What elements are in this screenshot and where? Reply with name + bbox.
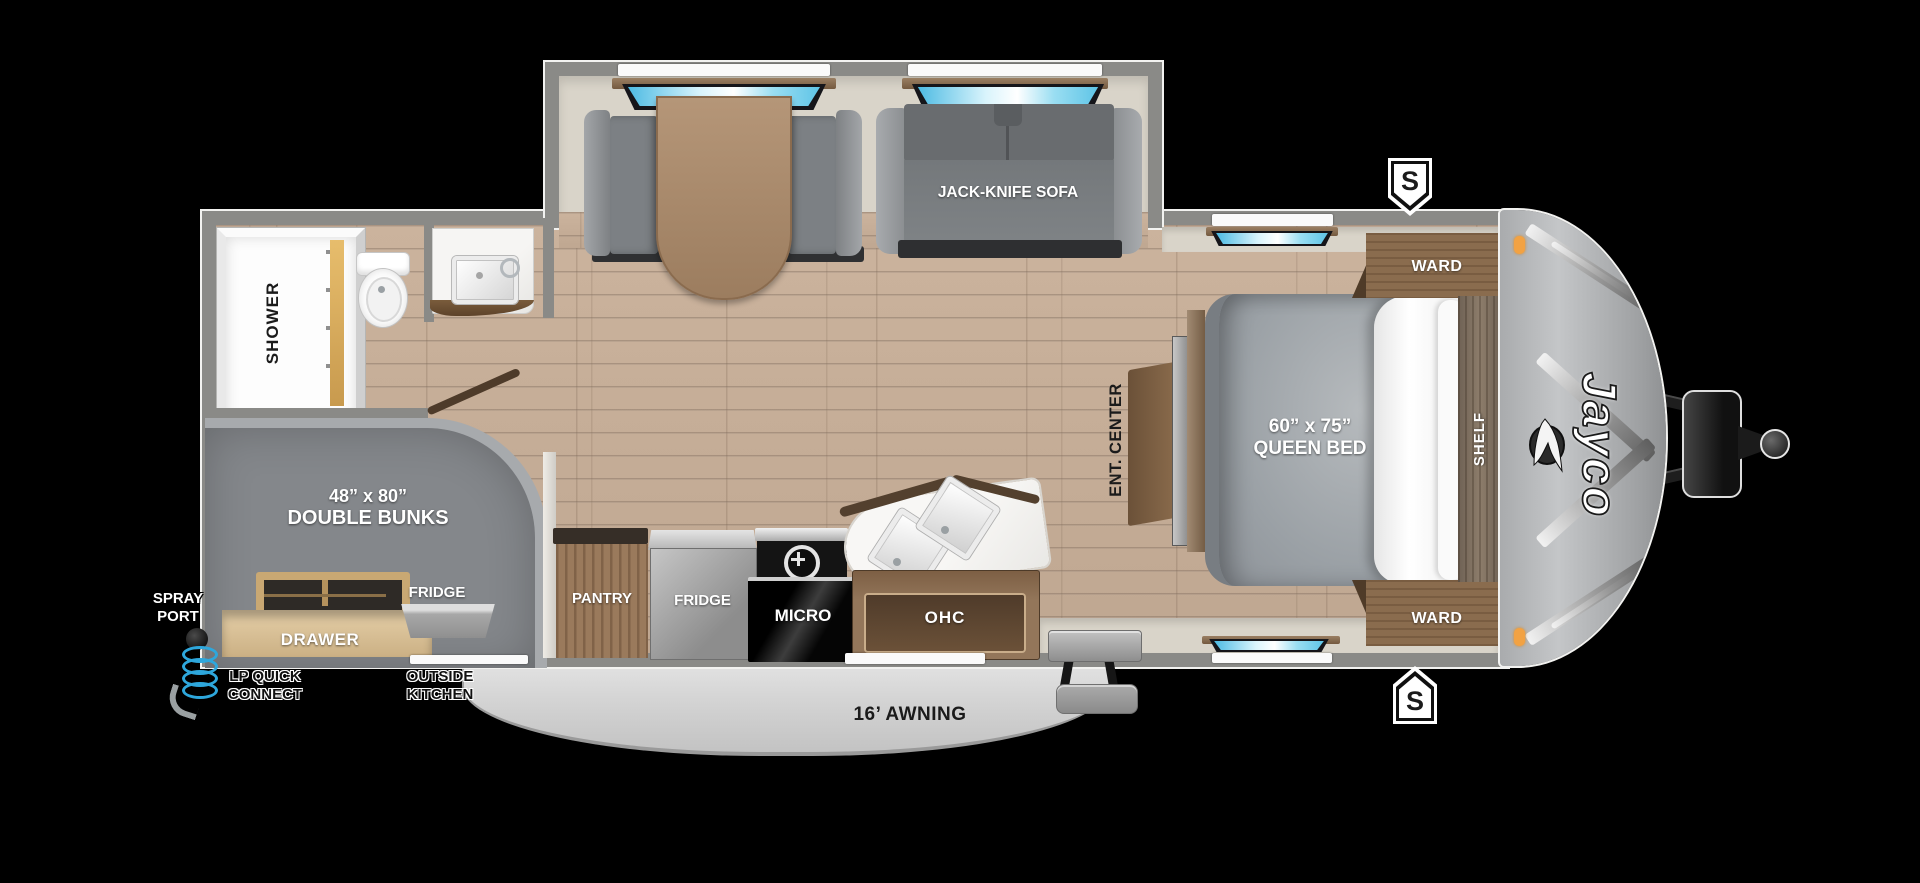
bunk-opening-shelf-line bbox=[264, 594, 386, 597]
bunks-label: 48” x 80” DOUBLE BUNKS bbox=[268, 486, 468, 531]
shower-door-hinge-dots bbox=[326, 250, 330, 400]
bathroom-right-wall bbox=[543, 218, 554, 318]
spray-port-line2: PORT bbox=[136, 608, 220, 626]
bedroom-top-window-glass bbox=[1215, 233, 1329, 244]
marker-light-top bbox=[1514, 236, 1525, 254]
dinette-bench-left-cushion bbox=[610, 116, 658, 254]
fridge-top-vent bbox=[648, 530, 757, 550]
ward-bottom-label: WARD bbox=[1392, 610, 1482, 629]
queen-bed-label: 60” x 75” QUEEN BED bbox=[1230, 416, 1390, 461]
outside-kitchen-label: OUTSIDE KITCHEN bbox=[378, 668, 502, 704]
hitch-ball-coupler bbox=[1760, 429, 1790, 459]
toilet-seat bbox=[366, 277, 402, 322]
sofa-back-notch bbox=[994, 104, 1022, 126]
entry-step-upper bbox=[1048, 630, 1142, 662]
marker-light-bottom bbox=[1514, 628, 1525, 646]
slide-window-right-exterior-bar bbox=[908, 64, 1102, 76]
dinette-bench-left-back bbox=[584, 110, 610, 256]
slide-window-left-exterior-bar bbox=[618, 64, 830, 76]
rv-floorplan: 16’ AWNING JACK-KNIFE SOFA SHOWER bbox=[0, 0, 1920, 883]
bedroom-bottom-window-glass bbox=[1213, 641, 1325, 650]
sofa-label: JACK-KNIFE SOFA bbox=[908, 184, 1108, 202]
lp-quick-connect-label: LP QUICK CONNECT bbox=[203, 668, 327, 704]
shelf-label: SHELF bbox=[1471, 369, 1489, 509]
bunks-size-label: 48” x 80” bbox=[268, 486, 468, 507]
burner-cross-v bbox=[797, 552, 800, 566]
drawer-label: DRAWER bbox=[240, 630, 400, 650]
kitchen-sink-drain-right bbox=[941, 526, 949, 534]
bedroom-bottom-window-exterior-bar bbox=[1212, 653, 1332, 663]
speaker-marker-bottom: S bbox=[1393, 666, 1437, 724]
bathroom-sink-drain bbox=[476, 272, 483, 279]
sofa-arm-right bbox=[1112, 108, 1142, 254]
bedroom-top-window-exterior-bar bbox=[1212, 214, 1333, 226]
pantry-counter-edge bbox=[553, 528, 648, 544]
bathroom-faucet-icon bbox=[500, 258, 520, 278]
ohc-label: OHC bbox=[885, 608, 1005, 628]
awning-label: 16’ AWNING bbox=[810, 704, 1010, 726]
sofa-front-base bbox=[898, 240, 1122, 258]
pantry-label: PANTRY bbox=[558, 590, 646, 608]
lp-line1: LP QUICK bbox=[203, 668, 327, 686]
fridge-label: FRIDGE bbox=[655, 592, 750, 610]
dinette-bench-right-back bbox=[836, 110, 862, 256]
outside-kitchen-fridge-tray bbox=[396, 604, 500, 638]
dinette-table bbox=[656, 96, 792, 300]
micro-label: MICRO bbox=[750, 606, 856, 626]
outside-kitchen-line1: OUTSIDE bbox=[378, 668, 502, 686]
outside-kitchen-line2: KITCHEN bbox=[378, 686, 502, 704]
bunks-name-label: DOUBLE BUNKS bbox=[268, 507, 468, 531]
ent-center-console-angled-panel bbox=[1128, 362, 1176, 526]
ward-top-label: WARD bbox=[1392, 258, 1482, 277]
speaker-bottom-label: S bbox=[1399, 686, 1431, 717]
toilet-flush-button bbox=[378, 286, 385, 293]
spray-port-line1: SPRAY bbox=[136, 590, 220, 608]
speaker-top-label: S bbox=[1394, 166, 1426, 197]
kitchen-sink-drain-left bbox=[893, 558, 901, 566]
sofa-arm-left bbox=[876, 108, 906, 254]
spray-port-label: SPRAY PORT bbox=[136, 590, 220, 626]
ent-center-label: ENT. CENTER bbox=[1107, 375, 1127, 505]
speaker-marker-top: S bbox=[1388, 158, 1432, 216]
jayco-logo-text: Jayco bbox=[1572, 372, 1627, 518]
ent-center-cabinet bbox=[1187, 310, 1205, 552]
jayco-logo-lockup: Jayco bbox=[1517, 330, 1637, 560]
lp-line2: CONNECT bbox=[203, 686, 327, 704]
shower-glass-door bbox=[330, 240, 344, 406]
range-top-trim bbox=[755, 528, 848, 541]
entry-step-lower bbox=[1056, 684, 1138, 714]
outside-kitchen-fridge-label: FRIDGE bbox=[392, 584, 482, 602]
outside-kitchen-door-bar bbox=[410, 655, 528, 664]
bunk-opening-divider bbox=[322, 580, 328, 606]
jayco-eagle-icon bbox=[1528, 413, 1568, 477]
kitchen-end-panel bbox=[543, 452, 556, 658]
propane-tank-cover bbox=[1682, 390, 1742, 498]
sofa-seat bbox=[904, 160, 1114, 246]
entry-door-bar bbox=[845, 653, 985, 664]
bed-size-label: 60” x 75” bbox=[1230, 416, 1390, 438]
cap-accent-stripe-top-2 bbox=[1550, 240, 1654, 310]
stove-burner-icon bbox=[784, 545, 820, 581]
dinette-bench-right-cushion bbox=[788, 116, 836, 254]
shower-label: SHOWER bbox=[263, 263, 283, 383]
bed-type-label: QUEEN BED bbox=[1230, 438, 1390, 460]
cap-accent-stripe-bottom-2 bbox=[1550, 559, 1654, 629]
